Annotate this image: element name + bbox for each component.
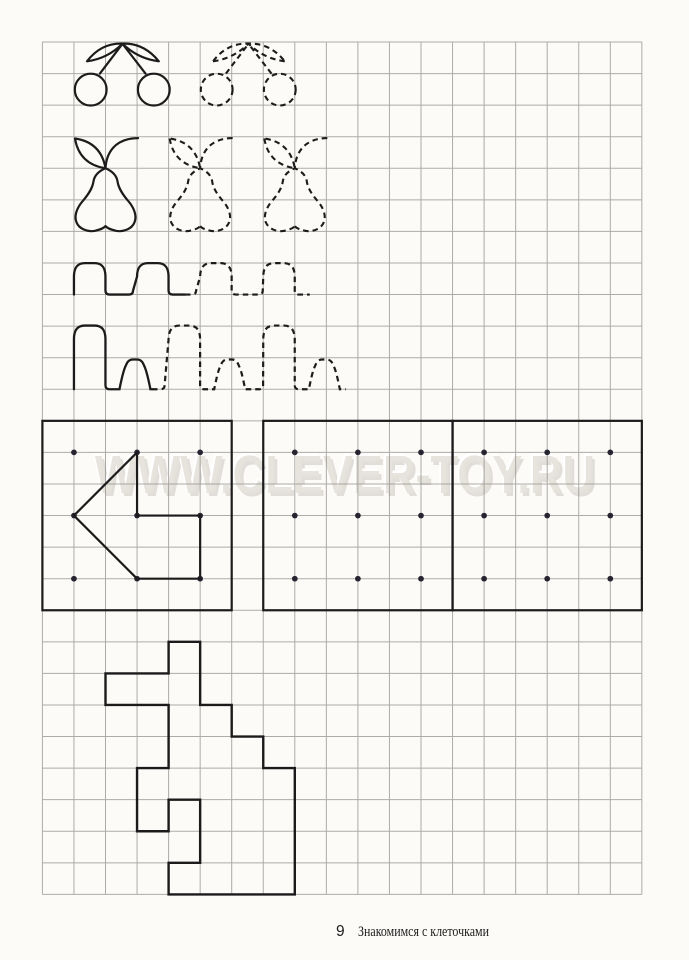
svg-text:Знакомимся с клеточками: Знакомимся с клеточками <box>358 924 489 940</box>
svg-text:9: 9 <box>336 923 345 940</box>
svg-text:WWW.CLEVER-TOY.RU: WWW.CLEVER-TOY.RU <box>95 445 595 505</box>
